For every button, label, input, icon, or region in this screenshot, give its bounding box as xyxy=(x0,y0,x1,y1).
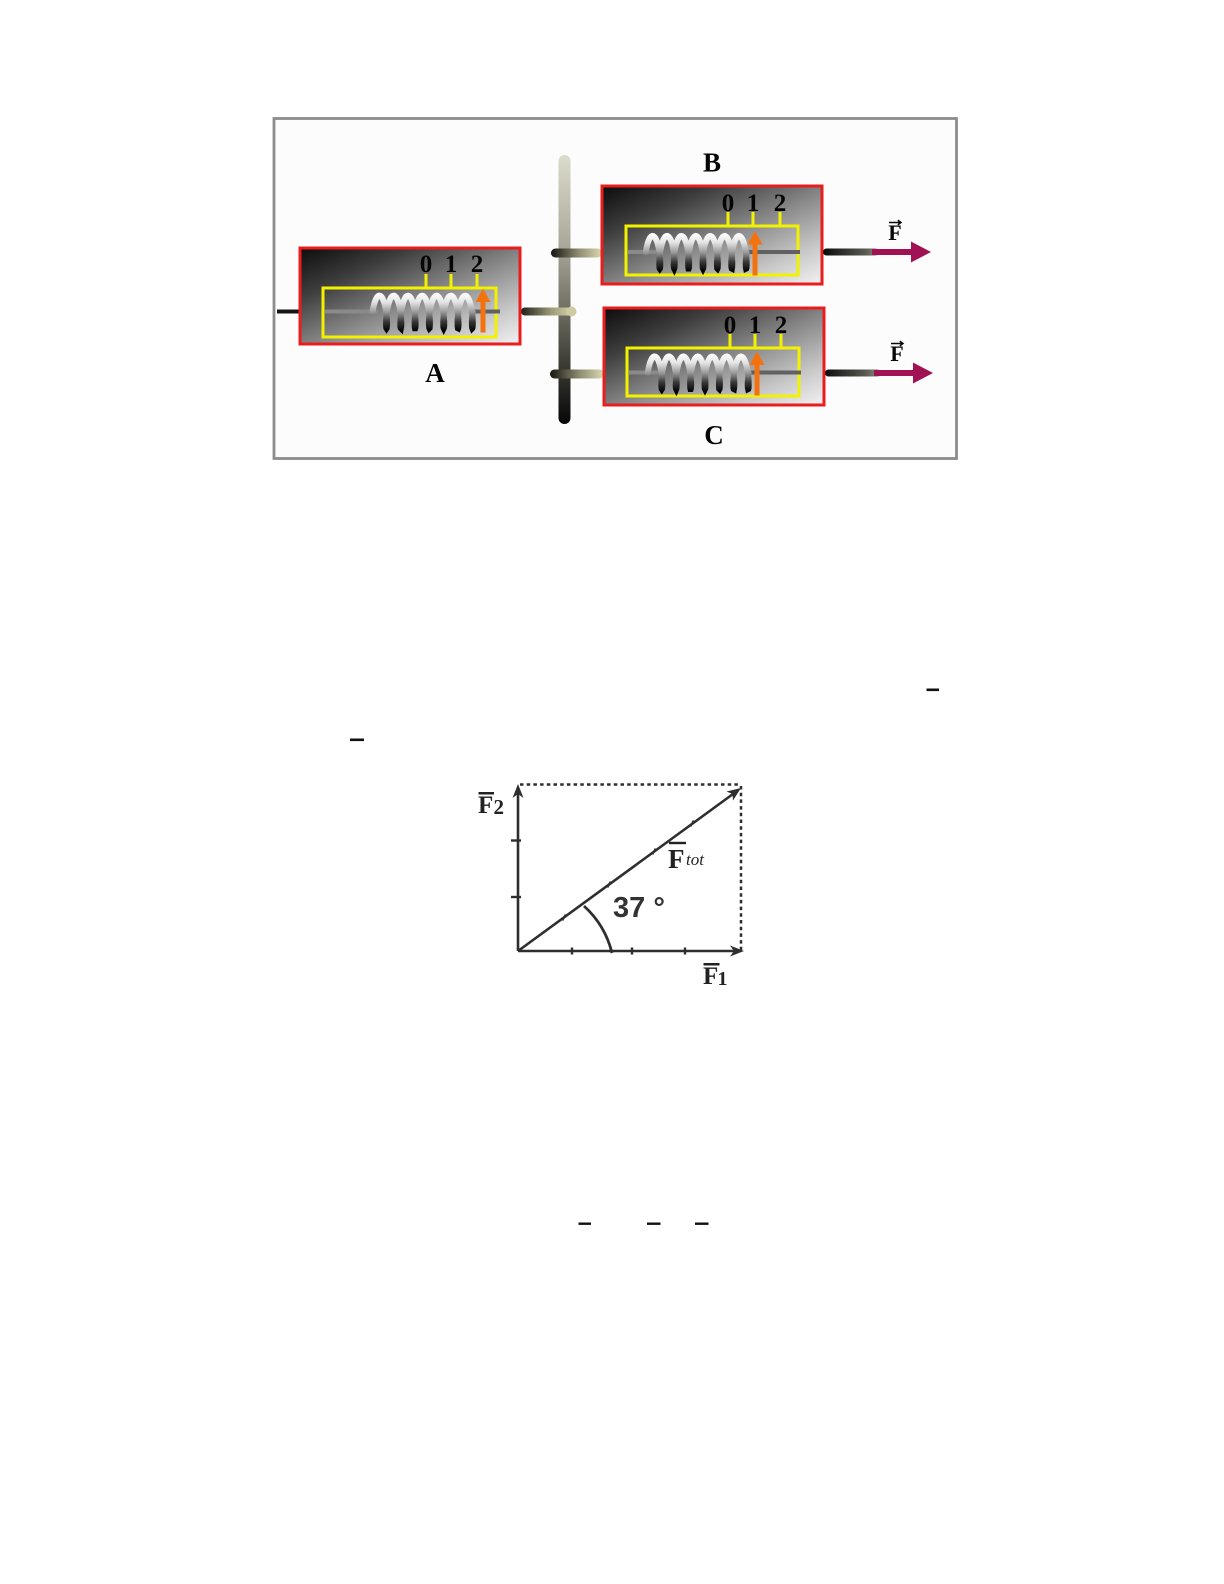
svg-text:0: 0 xyxy=(420,251,433,278)
svg-text:0: 0 xyxy=(722,190,735,217)
svg-text:1: 1 xyxy=(749,312,762,339)
svg-text:2: 2 xyxy=(775,312,788,339)
svg-text:F: F xyxy=(478,792,493,819)
svg-text:2: 2 xyxy=(471,251,484,278)
svg-text:tot: tot xyxy=(686,850,705,869)
svg-text:B: B xyxy=(703,148,721,178)
svg-text:2: 2 xyxy=(494,795,505,819)
svg-text:F: F xyxy=(668,844,685,874)
svg-text:1: 1 xyxy=(445,251,458,278)
svg-text:37 °: 37 ° xyxy=(613,892,665,924)
svg-text:2: 2 xyxy=(774,190,787,217)
svg-text:F: F xyxy=(703,963,718,990)
svg-text:1: 1 xyxy=(718,968,728,990)
svg-text:1: 1 xyxy=(747,190,760,217)
svg-text:A: A xyxy=(425,358,445,388)
svg-text:C: C xyxy=(704,420,724,450)
svg-text:0: 0 xyxy=(724,312,737,339)
